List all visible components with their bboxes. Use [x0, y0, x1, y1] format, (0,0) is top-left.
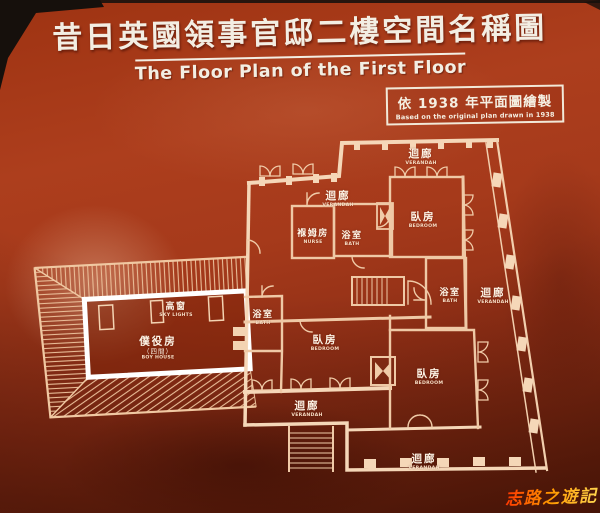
label-verandah-bottom: 迴廊 VERANDAH	[404, 454, 444, 472]
label-verandah-top: 迴廊 VERANDAH	[318, 191, 358, 209]
label-verandah-bottom-left: 迴廊 VERANDAH	[287, 401, 327, 419]
label-bedroom-upper-right: 臥房 BEDROOM	[405, 212, 442, 230]
label-bath-right: 浴室 BATH	[439, 289, 460, 305]
floor-plan	[0, 0, 600, 513]
label-bedroom-lower-right: 臥房 BEDROOM	[411, 369, 448, 387]
sign-board: 昔日英國領事官邸二樓空間名稱圖 The Floor Plan of the Fi…	[0, 0, 600, 513]
label-verandah-top-right: 迴廊 VERANDAH	[401, 149, 441, 167]
label-verandah-right: 迴廊 VERANDAH	[473, 288, 513, 306]
label-servants-room: 僕役房 （四間） BOY HOUSE	[137, 336, 179, 361]
label-bath-left: 浴室 BATH	[252, 311, 273, 327]
label-nurse-room: 褓姆房 NURSE	[297, 230, 329, 246]
photo-watermark: 志路之遊記	[504, 481, 597, 509]
label-bath-upper: 浴室 BATH	[341, 232, 362, 248]
photo-dark-edge	[0, 0, 600, 90]
label-skylights: 高窗 SKY LIGHTS	[155, 303, 198, 319]
entry-stairs	[289, 427, 333, 471]
label-bedroom-center: 臥房 BEDROOM	[307, 335, 344, 353]
